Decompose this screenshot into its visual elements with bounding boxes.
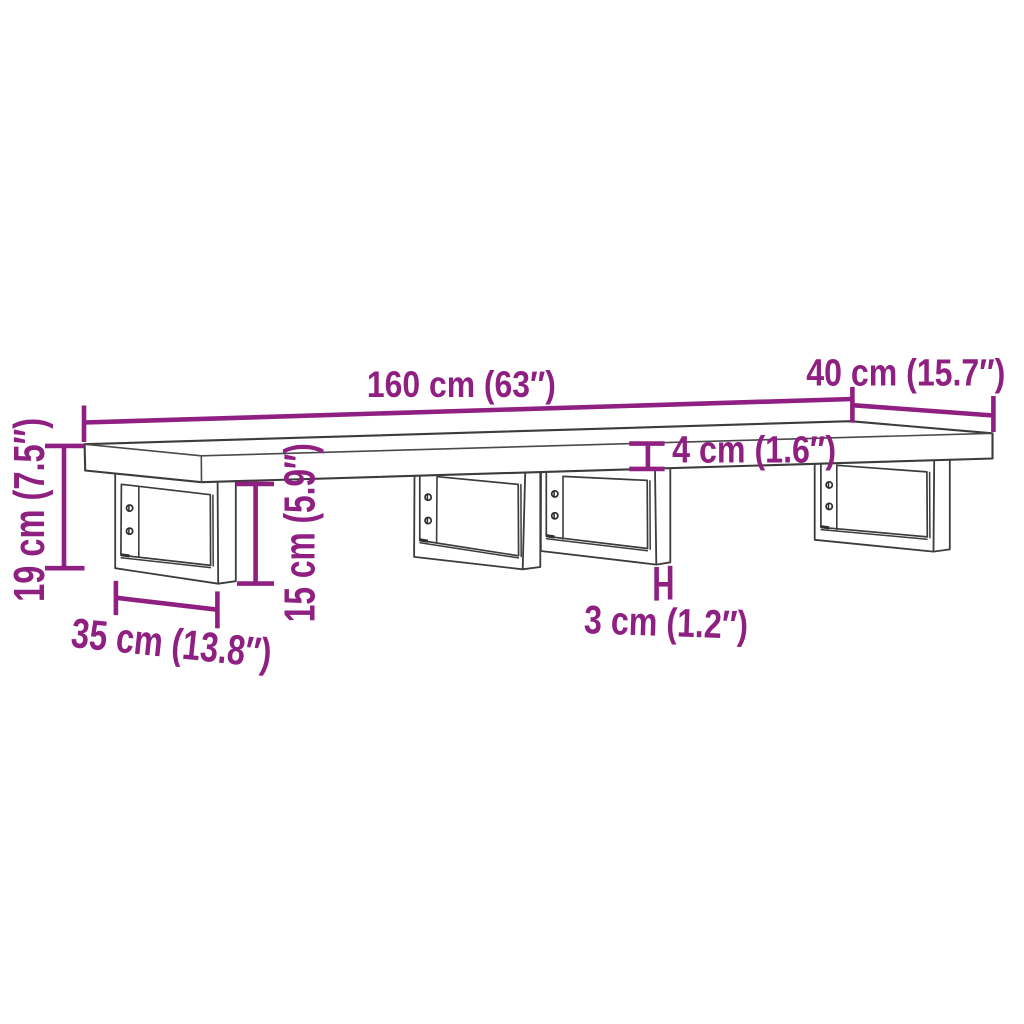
svg-text:15 cm (5.9″): 15 cm (5.9″) [277,443,325,622]
svg-text:40 cm (15.7″): 40 cm (15.7″) [806,352,1005,394]
svg-text:3 cm (1.2″): 3 cm (1.2″) [583,598,748,648]
svg-text:4 cm (1.6″): 4 cm (1.6″) [672,430,836,472]
svg-text:160 cm (63″): 160 cm (63″) [367,364,556,405]
svg-text:19 cm (7.5″): 19 cm (7.5″) [6,418,54,602]
